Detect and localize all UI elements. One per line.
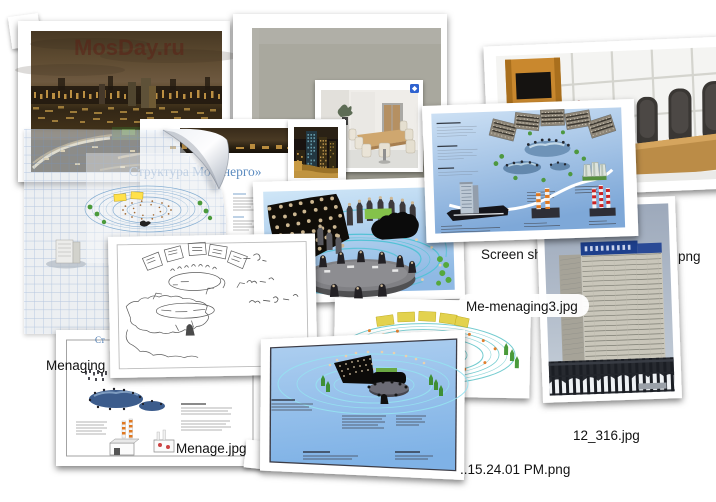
svg-text:Me-menaging3.jpg: Me-menaging3.jpg <box>466 299 578 314</box>
svg-text:MosDay.ru: MosDay.ru <box>74 35 185 60</box>
svg-text:png: png <box>678 249 701 264</box>
svg-text:Ст: Ст <box>95 335 105 345</box>
svg-text:12_316.jpg: 12_316.jpg <box>573 428 640 443</box>
svg-text:Menage.jpg: Menage.jpg <box>176 441 247 456</box>
svg-text:Menaging: Menaging <box>46 358 105 373</box>
svg-text:Screen sh: Screen sh <box>481 247 542 262</box>
svg-text:..15.24.01 PM.png: ..15.24.01 PM.png <box>460 462 570 477</box>
